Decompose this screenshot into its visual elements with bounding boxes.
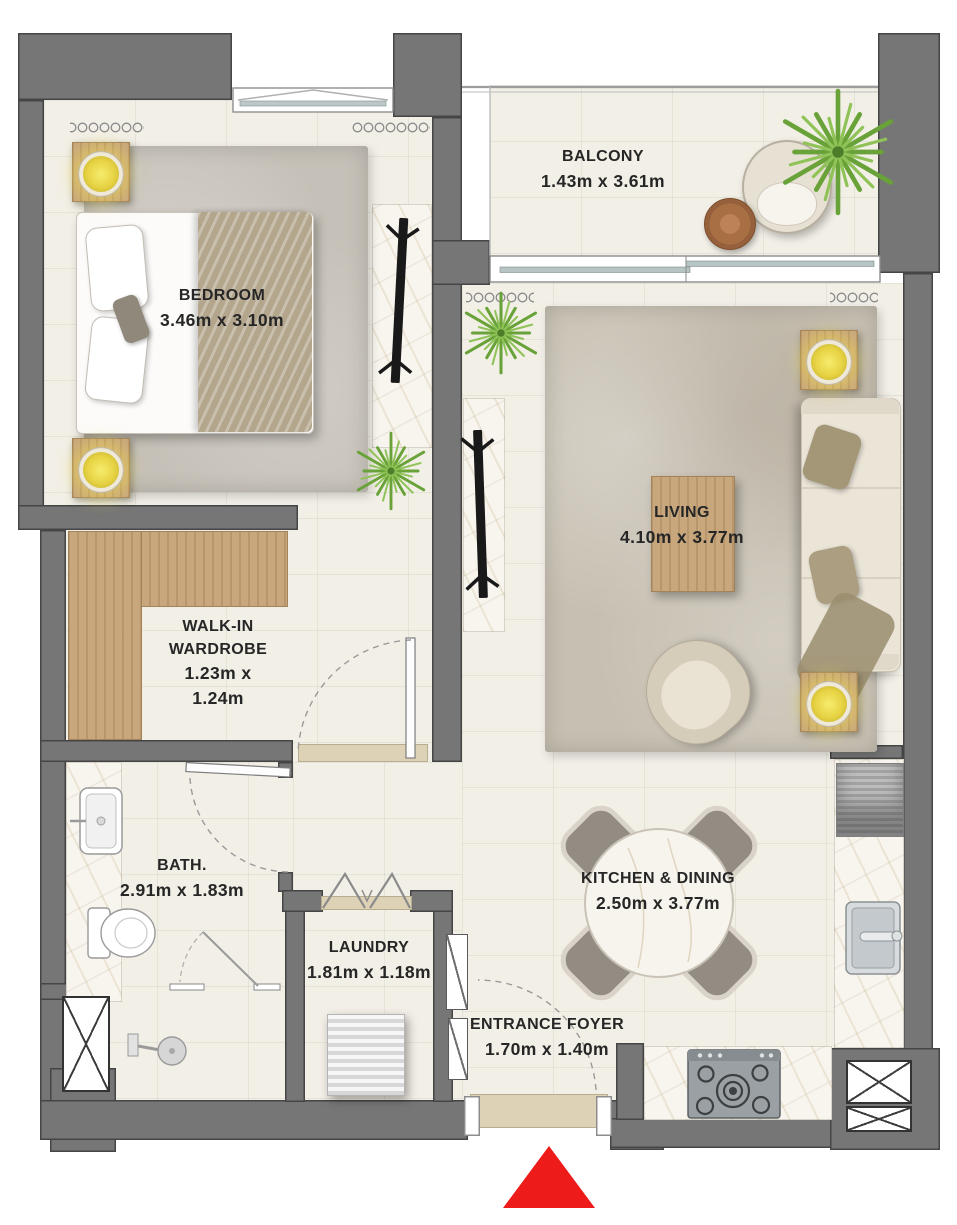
tv-living <box>461 429 499 598</box>
room-dims: 3.46m x 3.10m <box>160 308 284 333</box>
bifold-doors-laundry <box>323 874 410 908</box>
bath-sink <box>70 788 122 854</box>
room-dims: 1.81m x 1.18m <box>307 960 431 985</box>
floor-plan: BALCONY 1.43m x 3.61m BEDROOM 3.46m x 3.… <box>0 0 957 1225</box>
room-name: WALK-IN <box>169 616 267 639</box>
bedroom-window <box>233 88 393 112</box>
room-name: KITCHEN & DINING <box>581 868 735 891</box>
room-dims: 1.24m <box>169 686 267 711</box>
door-corridor <box>298 638 415 758</box>
toilet <box>88 908 155 958</box>
kitchen-label: KITCHEN & DINING 2.50m x 3.77m <box>581 868 735 916</box>
plant-icon <box>466 293 535 373</box>
kitchen-sink <box>846 902 902 974</box>
room-dims: 1.43m x 3.61m <box>541 169 665 194</box>
laundry-label: LAUNDRY 1.81m x 1.18m <box>307 937 431 985</box>
room-name: BALCONY <box>541 146 665 169</box>
curtain-symbol <box>830 288 878 305</box>
room-dims: 2.91m x 1.83m <box>120 878 244 903</box>
shower-head <box>128 1034 186 1065</box>
foyer-label: ENTRANCE FOYER 1.70m x 1.40m <box>470 1014 624 1062</box>
living-label: LIVING 4.10m x 3.77m <box>620 502 744 550</box>
curtain-symbol <box>352 119 430 136</box>
curtain-symbol <box>70 119 144 136</box>
room-name: BEDROOM <box>160 285 284 308</box>
room-name: ENTRANCE FOYER <box>470 1014 624 1037</box>
room-dims: 4.10m x 3.77m <box>620 525 744 550</box>
tv-bedroom <box>379 217 420 383</box>
room-name: WARDROBE <box>169 639 267 662</box>
room-name: BATH. <box>120 855 244 878</box>
door-shower <box>170 932 280 990</box>
wardrobe-label: WALK-IN WARDROBE 1.23m x 1.24m <box>169 616 267 711</box>
bath-label: BATH. 2.91m x 1.83m <box>120 855 244 903</box>
sliding-door <box>490 256 880 282</box>
bedroom-label: BEDROOM 3.46m x 3.10m <box>160 285 284 333</box>
balcony-label: BALCONY 1.43m x 3.61m <box>541 146 665 194</box>
gas-stove <box>688 1050 780 1118</box>
room-dims: 1.70m x 1.40m <box>470 1037 624 1062</box>
plant-icon <box>358 433 423 509</box>
room-name: LIVING <box>620 502 744 525</box>
room-dims: 2.50m x 3.77m <box>581 891 735 916</box>
room-dims: 1.23m x <box>169 661 267 686</box>
plant-icon <box>785 91 890 213</box>
room-name: LAUNDRY <box>307 937 431 960</box>
